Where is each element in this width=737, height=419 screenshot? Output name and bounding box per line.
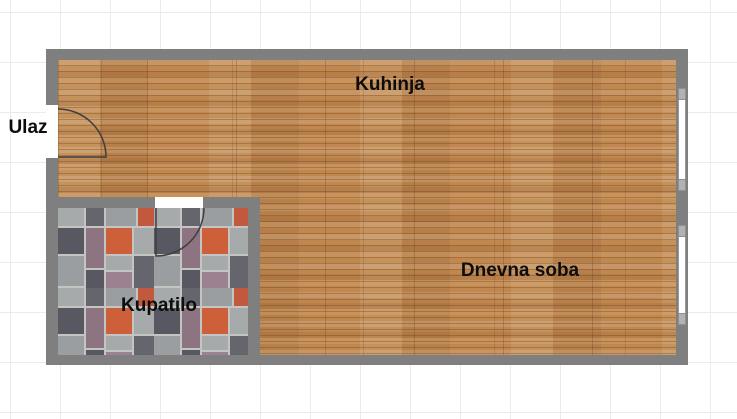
bathroom-door-opening [155,197,203,208]
canvas-grid-background: { "floorplan": { "labels": { "entrance":… [0,0,737,419]
entrance-door-opening [46,105,58,158]
floor-plan: Ulaz Kuhinja Dnevna soba Kupatilo [0,0,737,419]
bathroom-tile-floor [58,208,248,355]
window-2 [678,225,686,325]
room-label-bathroom: Kupatilo [121,295,197,317]
window-1 [678,88,686,191]
room-label-living-room: Dnevna soba [461,260,579,282]
room-label-entrance: Ulaz [8,117,47,139]
room-label-kitchen: Kuhinja [355,74,425,96]
